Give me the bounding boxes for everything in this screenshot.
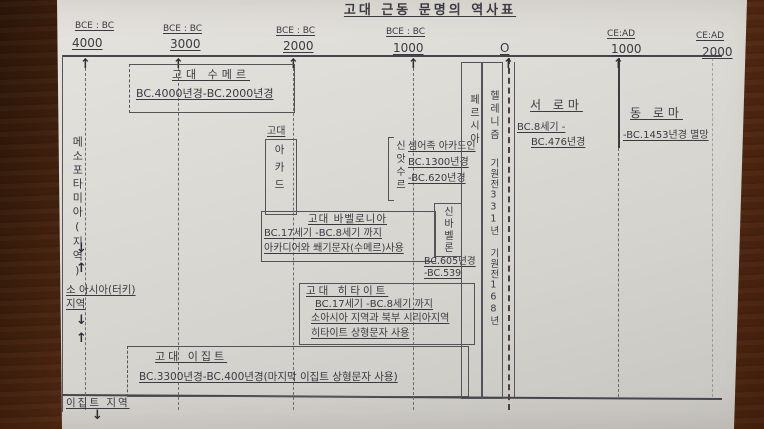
hellenism-start: 기원전331년: [487, 158, 499, 236]
tick-era-cead-1000: CE:AD: [607, 29, 635, 40]
tick-year-2000: 2000: [283, 39, 314, 54]
assyria-start: BC.1300년경: [408, 157, 469, 170]
hittite-period: BC.17세기 -BC.8세기 까지: [315, 299, 433, 312]
sumer-period: BC.4000년경-BC.2000년경: [136, 87, 274, 101]
down-arrow-icon: ↓: [76, 242, 87, 255]
axis-up-arrow-icon: ↑: [613, 58, 624, 71]
tick-era-cead-2000: CE:AD: [696, 31, 724, 42]
down-arrow-icon: ↓: [76, 314, 87, 327]
gridline-ad2000: [712, 58, 713, 397]
axis-up-arrow-icon: ↑: [80, 58, 91, 71]
paper-sheet: 고대 근동 문명의 역사표 BCE : BC 4000 BCE : BC 300…: [0, 0, 764, 429]
akkad-prefix: 고대: [267, 126, 285, 139]
assyria-end: -BC.620년경: [408, 173, 466, 186]
region-label-asia-minor-2: 지역: [66, 298, 85, 311]
babylonia-period: BC.17세기 -BC.8세기 까지: [264, 228, 382, 241]
tick-era-bce-1000: BCE : BC: [386, 27, 425, 38]
gridline-bc4000: [85, 58, 86, 410]
hellenism-end: 기원전168년: [487, 248, 499, 326]
west-rome-line2: BC.476년경: [531, 137, 585, 150]
neo-babylon-end: -BC.539: [424, 268, 461, 280]
tick-year-1000: 1000: [393, 41, 424, 56]
hittite-title: 고대 히타이트: [306, 285, 388, 298]
babylonia-title: 고대 바벨로니아: [261, 213, 434, 226]
page-title: 고대 근동 문명의 역사표: [300, 3, 560, 19]
sumer-title: 고대 수메르: [129, 68, 293, 82]
assyria-name: 신앗수르: [392, 140, 405, 192]
gridline-year-zero: [508, 58, 510, 410]
east-rome-title: 동 로마: [630, 106, 683, 121]
east-rome-line1: -BC.1453년경 멸망: [623, 130, 709, 143]
tick-era-bce-3000: BCE : BC: [163, 24, 202, 35]
west-rome-title: 서 로마: [530, 98, 583, 113]
tick-year-3000: 3000: [170, 37, 201, 52]
hellenism-name: 헬레니즘: [486, 90, 499, 142]
tick-year-ad2000: 2000: [702, 45, 733, 60]
down-arrow-icon: ↓: [92, 409, 103, 422]
hittite-region: 소아시아 지역과 북부 시리아지역: [311, 313, 449, 326]
west-rome-left-border: [514, 62, 515, 397]
tick-year-4000: 4000: [72, 36, 103, 51]
axis-up-arrow-icon: ↑: [408, 58, 419, 71]
left-margin-line: [62, 55, 63, 412]
hittite-note: 히타이트 상형문자 사용: [311, 328, 409, 341]
neo-babylon-name: 신바벨론: [440, 206, 453, 254]
photo-of-timeline-chart: 고대 근동 문명의 역사표 BCE : BC 4000 BCE : BC 300…: [0, 0, 764, 429]
akkad-name: 아카드: [272, 144, 285, 197]
tick-era-bce-2000: BCE : BC: [276, 26, 315, 37]
up-arrow-icon: ↑: [76, 262, 87, 275]
gridline-ad1000-dashed: [618, 148, 619, 397]
up-arrow-icon: ↑: [76, 332, 87, 345]
egypt-title: 고대 이집트: [155, 350, 227, 364]
babylonia-note: 아카디어와 쐐기문자(수메르)사용: [264, 243, 404, 256]
west-rome-line1: BC.8세기 -: [517, 122, 565, 135]
egypt-period: BC.3300년경-BC.400년경(마지막 이집트 상형문자 사용): [139, 371, 398, 384]
tick-year-ad1000: 1000: [611, 42, 642, 57]
region-label-asia-minor: 소 아시아(터키): [66, 284, 136, 297]
tick-year-zero: O: [500, 41, 509, 56]
axis-up-arrow-icon: ↑: [503, 58, 514, 71]
persia-name: 페르시아: [466, 94, 479, 146]
tick-era-bce-4000: BCE : BC: [75, 21, 114, 32]
